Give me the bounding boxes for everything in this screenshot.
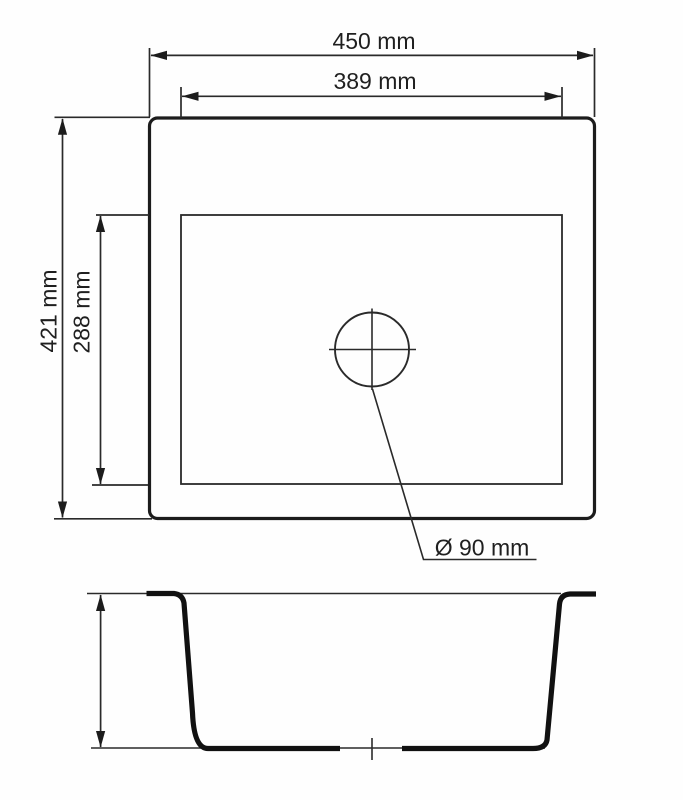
svg-text:450 mm: 450 mm — [332, 28, 415, 54]
svg-text:421 mm: 421 mm — [36, 269, 62, 352]
svg-text:Ø 90 mm: Ø 90 mm — [435, 535, 530, 561]
svg-text:288 mm: 288 mm — [69, 270, 95, 353]
svg-text:389 mm: 389 mm — [333, 68, 416, 94]
